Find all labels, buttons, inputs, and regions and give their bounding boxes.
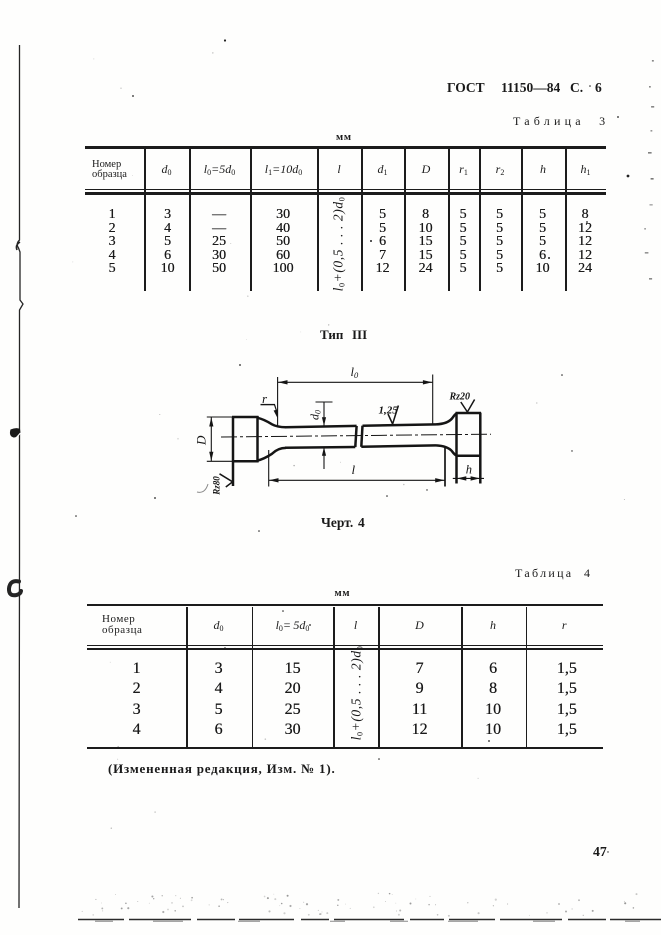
svg-text:d0: d0	[308, 410, 323, 420]
svg-text:Rz80: Rz80	[212, 476, 222, 496]
svg-text:1,25: 1,25	[379, 405, 399, 417]
svg-text:r: r	[262, 391, 268, 406]
svg-text:Rz20: Rz20	[449, 392, 471, 403]
svg-text:h: h	[466, 463, 472, 477]
svg-text:D: D	[194, 435, 209, 446]
svg-text:l0: l0	[351, 365, 359, 380]
svg-text:l: l	[352, 462, 356, 477]
